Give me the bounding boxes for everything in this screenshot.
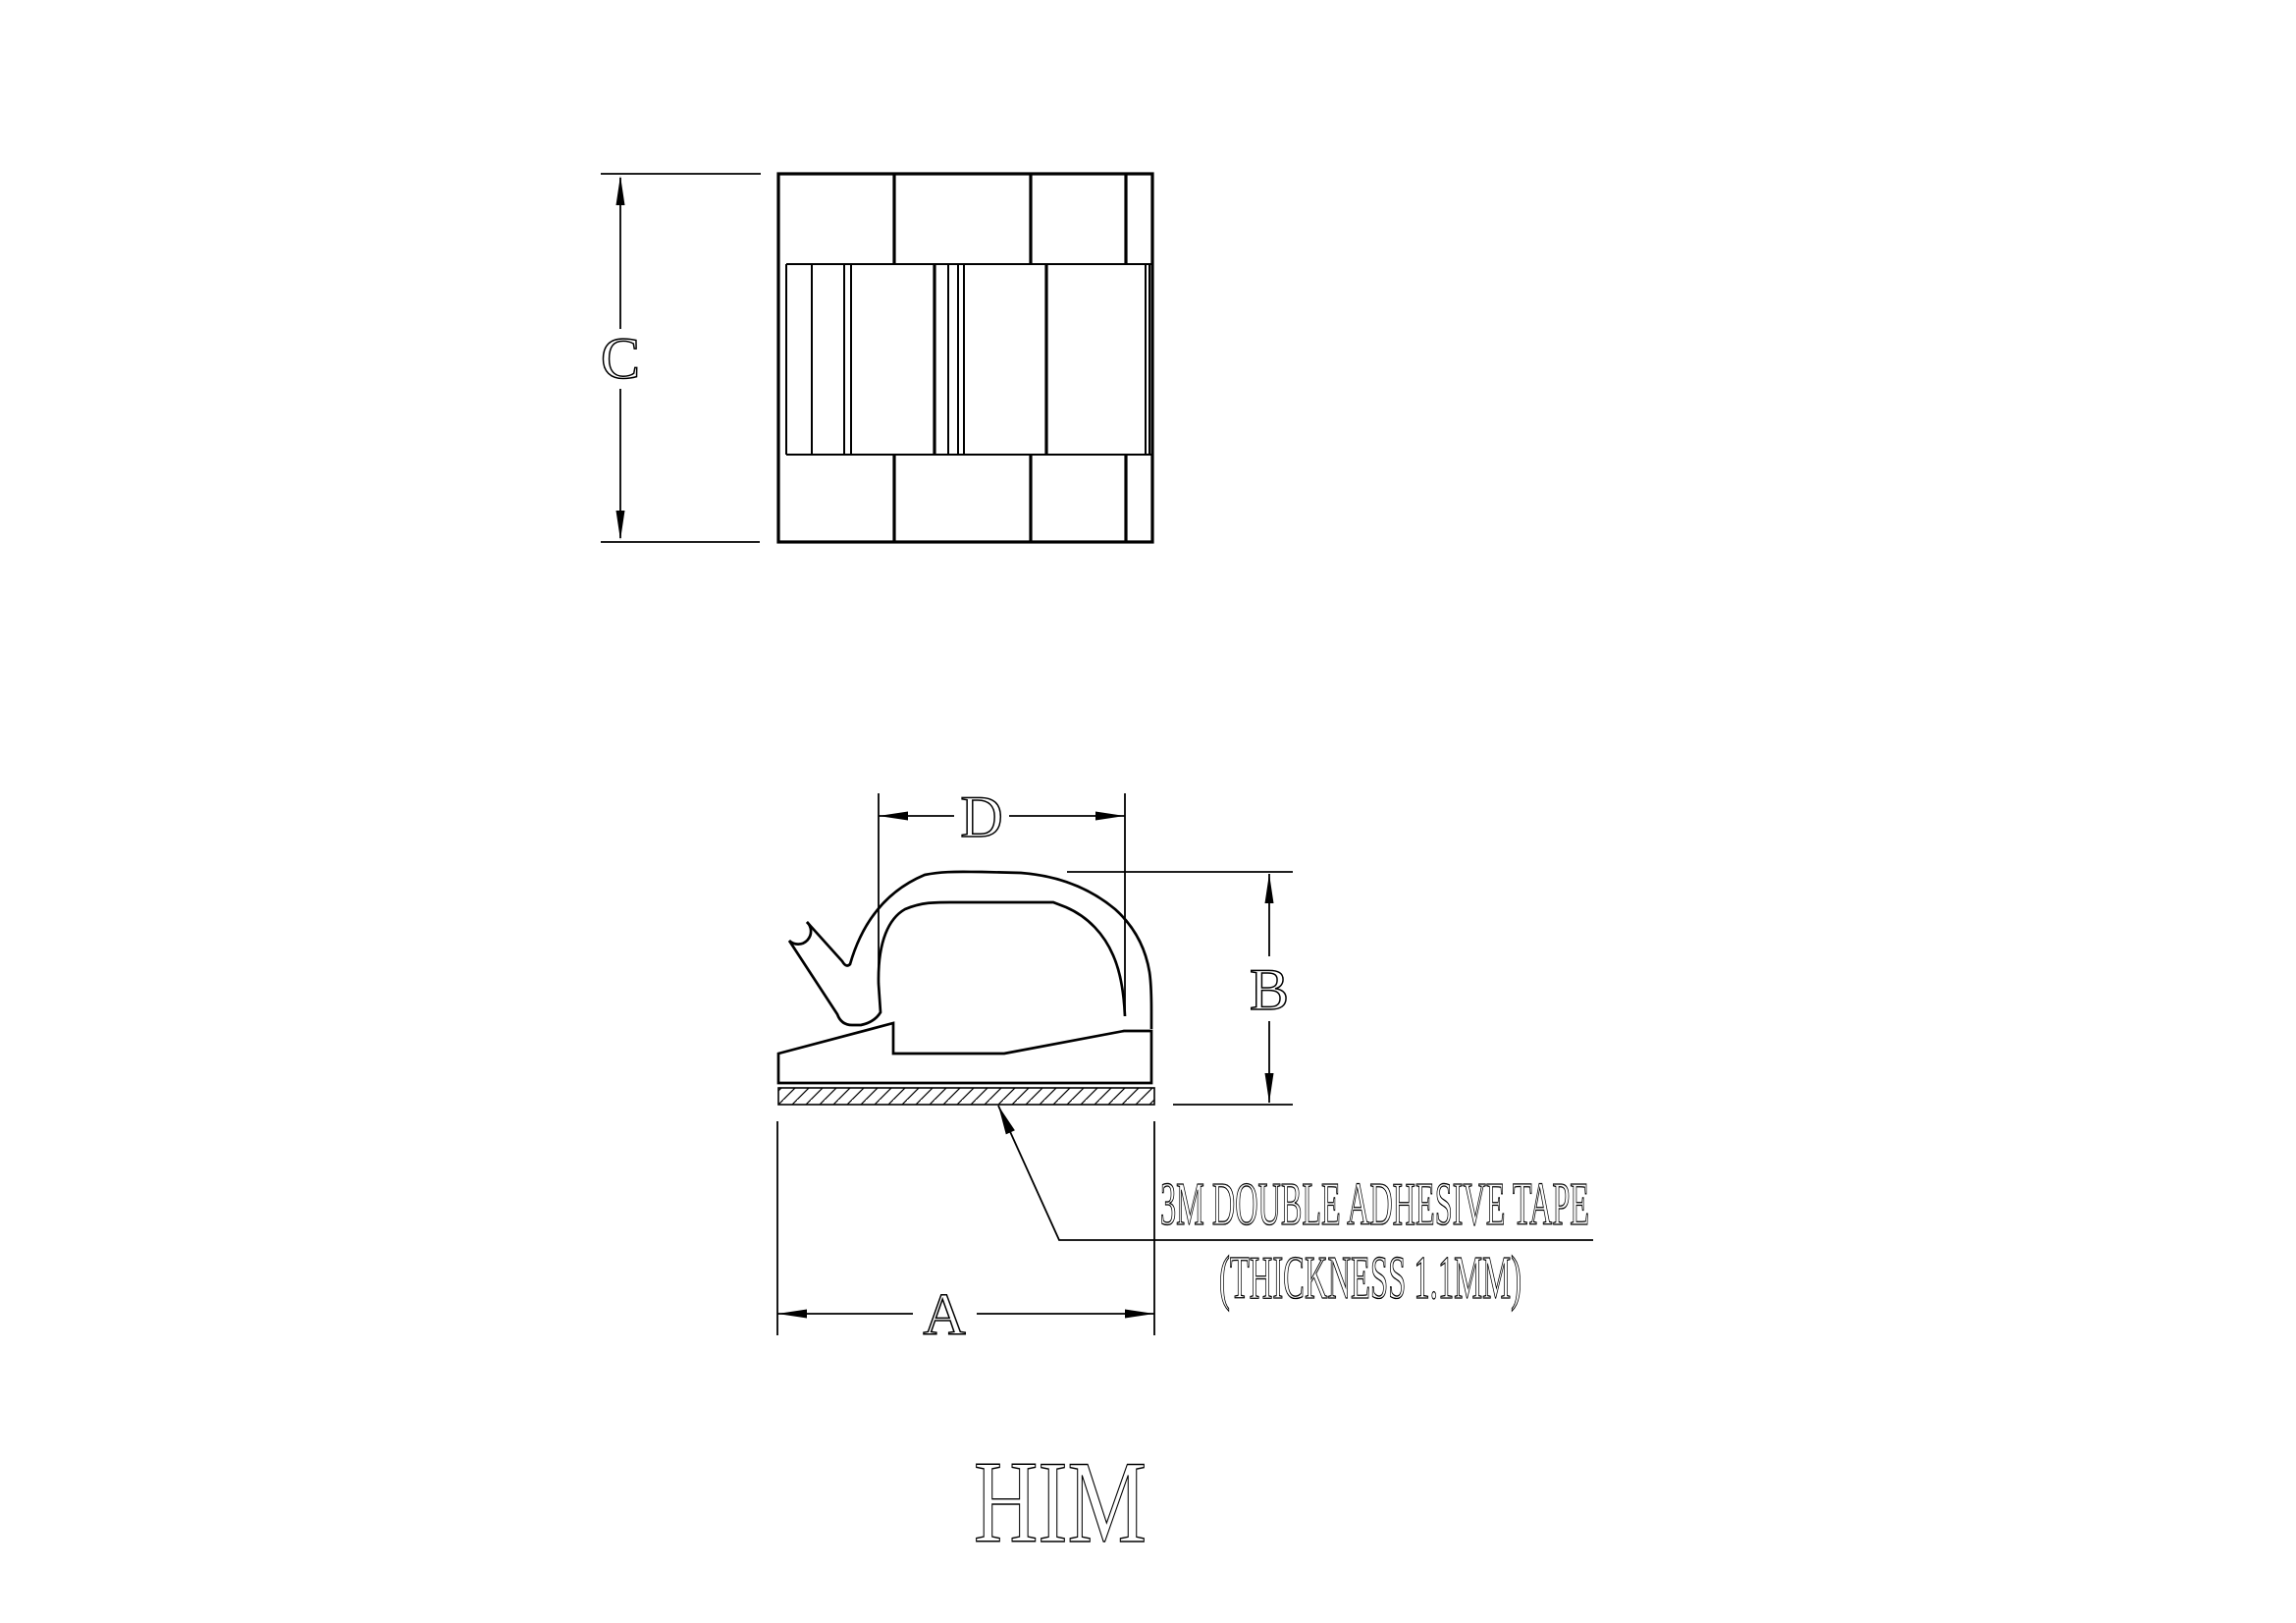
dimension-b: B [1067, 872, 1293, 1105]
dim-b-arrow-down-icon [1265, 1073, 1274, 1103]
leader-arrow-icon [998, 1106, 1015, 1134]
dim-d-label: D [960, 784, 1002, 849]
top-view-outline [778, 174, 1152, 542]
drawing-sheet: C D B A 3 [0, 0, 2296, 1623]
dim-c-label: C [601, 326, 640, 391]
dim-c-arrow-down-icon [616, 511, 625, 540]
dim-d-arrow-right-icon [1095, 812, 1125, 821]
dimension-a: A [777, 1121, 1154, 1347]
tape-note-line1: 3M DOUBLE ADHESIVE TAPE [1160, 1171, 1589, 1238]
adhesive-tape-hatched [778, 1088, 1154, 1105]
clip-base [778, 1023, 1151, 1083]
dimension-c: C [601, 174, 761, 542]
dim-a-arrow-left-icon [777, 1310, 807, 1319]
top-view-upper-band-dividers [894, 174, 1126, 264]
dim-b-arrow-up-icon [1265, 874, 1274, 903]
top-view [778, 174, 1152, 542]
clip-inner-arch [789, 902, 1125, 1025]
dim-d-arrow-left-icon [879, 812, 908, 821]
cad-drawing: C D B A 3 [0, 0, 2296, 1623]
top-view-lower-band-dividers [894, 455, 1126, 542]
dimension-d: D [879, 784, 1125, 1016]
tape-note-line2: (THICKNESS 1.1MM) [1219, 1245, 1522, 1312]
dim-b-label: B [1250, 957, 1289, 1022]
side-view [778, 872, 1154, 1105]
company-logo: HIM [974, 1436, 1147, 1567]
tape-leader-note: 3M DOUBLE ADHESIVE TAPE (THICKNESS 1.1MM… [998, 1106, 1593, 1312]
top-view-channel-ridges [812, 264, 1149, 455]
dim-c-arrow-up-icon [616, 176, 625, 205]
dim-a-arrow-right-icon [1125, 1310, 1154, 1319]
dim-a-label: A [923, 1282, 965, 1347]
clip-finger-cap [789, 922, 811, 945]
clip-outer-arch [807, 872, 1151, 1029]
